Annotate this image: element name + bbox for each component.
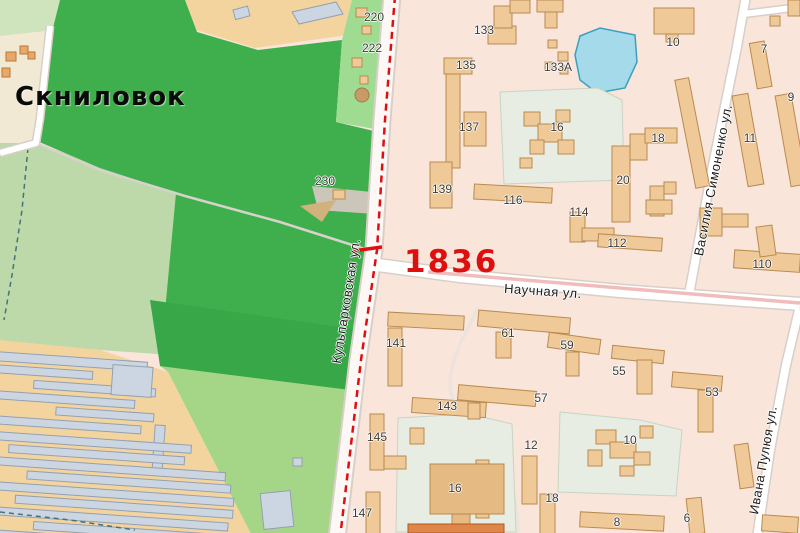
pond	[575, 28, 637, 93]
park-mound	[355, 88, 369, 102]
building-under-construction	[408, 524, 504, 533]
map-canvas[interactable]: Скниловок 1836 220222230133135133А137139…	[0, 0, 800, 533]
map-graphics	[0, 0, 800, 533]
route-marker-label[interactable]: 1836	[404, 244, 498, 280]
